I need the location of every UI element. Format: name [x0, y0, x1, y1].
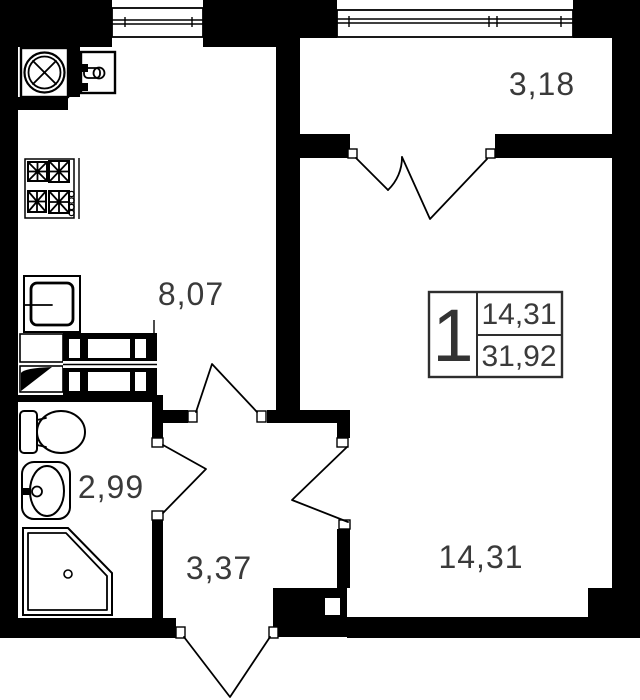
total-area-value: 31,92: [481, 340, 556, 373]
wall-segment: [347, 617, 640, 638]
bathroom-door: [152, 438, 206, 520]
door-leaf: [292, 447, 348, 522]
burner-icon: [28, 162, 47, 181]
wash-basin-icon: [22, 462, 70, 519]
entrance-door: [176, 627, 278, 697]
shower-outer: [23, 528, 112, 615]
shower-drain-icon: [64, 570, 72, 578]
floor-plan: 3,18 8,07 2,99 3,37 14,31 1 14,31 31,92: [0, 0, 640, 700]
wall-segment: [18, 97, 68, 110]
wall-segment: [495, 134, 612, 158]
wall-segment: [18, 0, 112, 47]
vent-cell: [20, 334, 63, 362]
sink-mount: [81, 83, 88, 91]
basin-tap-mount: [22, 488, 30, 495]
wall-segment: [300, 0, 337, 38]
door-jamb: [337, 438, 348, 447]
shower-inner: [28, 533, 107, 610]
wall-segment: [337, 423, 350, 438]
kitchen-area-label: 8,07: [158, 276, 224, 312]
vent-shaft-icon: [20, 333, 157, 397]
living-area-value: 14,31: [481, 298, 556, 331]
hallway-area-label: 3,37: [186, 550, 252, 586]
wall-segment: [573, 0, 640, 38]
door-leaf: [196, 364, 257, 412]
door-jamb: [152, 511, 163, 520]
wall-segment: [276, 0, 300, 423]
rooms-count-value: 1: [432, 294, 473, 377]
unit-info-box: 1 14,31 31,92: [429, 292, 562, 377]
floor-plan-drawing: 3,18 8,07 2,99 3,37 14,31 1 14,31 31,92: [0, 0, 640, 700]
vent-slot: [135, 372, 146, 391]
door-jamb: [152, 438, 163, 447]
wall-segment: [337, 529, 350, 588]
washing-machine-icon: [21, 48, 68, 97]
door-jamb: [348, 149, 357, 158]
shower-tray-icon: [23, 528, 112, 615]
wall-segment: [612, 38, 640, 638]
wall-segment: [0, 0, 18, 638]
vent-slot: [69, 372, 80, 391]
living-room-door: [292, 438, 350, 529]
door-jamb: [257, 411, 266, 422]
wall-segment: [267, 410, 350, 423]
wall-segment: [588, 588, 614, 618]
toilet-join: [37, 445, 46, 447]
wall-segment: [276, 134, 350, 158]
door-jamb: [486, 149, 495, 158]
basin-bowl: [30, 466, 64, 516]
door-leaf: [163, 445, 206, 513]
burner-icon: [28, 191, 46, 212]
door-leaf: [356, 158, 388, 190]
balcony-area-label: 3,18: [509, 66, 575, 102]
door-leaf: [184, 637, 270, 697]
vent-slot: [88, 372, 130, 391]
toilet-join: [37, 418, 46, 420]
stove-icon: [25, 158, 79, 219]
toilet-tank: [20, 411, 37, 453]
kitchen-door: [188, 364, 266, 422]
bathroom-area-label: 2,99: [78, 469, 144, 505]
vent-slot: [69, 339, 80, 358]
vent-slot: [135, 339, 146, 358]
wall-segment: [152, 520, 163, 618]
burner-icon: [49, 191, 69, 213]
kitchen-window: [112, 8, 203, 37]
fridge-icon: [24, 276, 80, 332]
balcony-glazing: [337, 10, 573, 37]
vent-wedge-icon: [21, 367, 52, 391]
burner-icon: [49, 161, 69, 182]
door-swing-arc: [388, 157, 402, 190]
kitchen-sink-icon: [81, 52, 115, 93]
fridge-inner: [31, 283, 73, 325]
wall-segment: [68, 47, 80, 97]
living-room-area-label: 14,31: [438, 539, 523, 575]
wall-segment: [0, 618, 176, 638]
basin-faucet-icon: [32, 487, 42, 497]
door-leaf: [402, 157, 487, 219]
balcony-door: [348, 149, 495, 219]
electric-panel-niche: [325, 598, 340, 615]
vent-slot: [88, 339, 130, 358]
toilet-icon: [20, 411, 85, 453]
